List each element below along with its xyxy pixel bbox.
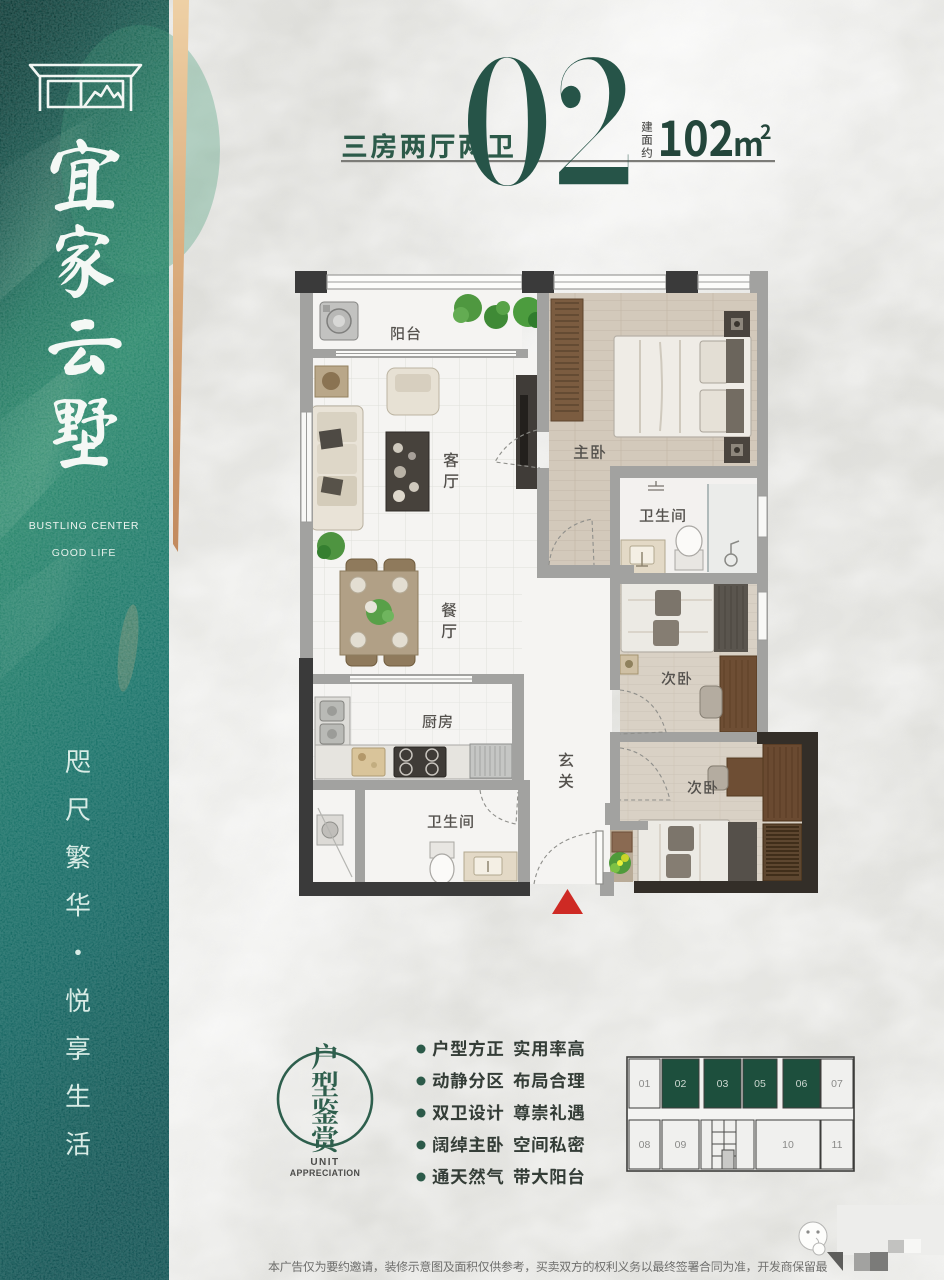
svg-text:05: 05 (754, 1078, 766, 1090)
svg-text:07: 07 (831, 1078, 843, 1090)
svg-text:GOOD LIFE: GOOD LIFE (52, 547, 116, 559)
svg-text:APPRECIATION: APPRECIATION (290, 1168, 361, 1178)
svg-text:11: 11 (832, 1139, 843, 1151)
svg-text:02: 02 (675, 1078, 687, 1090)
svg-text:06: 06 (796, 1078, 808, 1090)
svg-text:03: 03 (717, 1078, 729, 1090)
svg-text:10: 10 (782, 1139, 794, 1151)
svg-text:BUSTLING CENTER: BUSTLING CENTER (29, 520, 140, 532)
svg-text:01: 01 (639, 1078, 651, 1090)
svg-text:08: 08 (639, 1139, 651, 1151)
svg-text:UNIT: UNIT (310, 1157, 339, 1168)
svg-text:09: 09 (675, 1139, 687, 1151)
